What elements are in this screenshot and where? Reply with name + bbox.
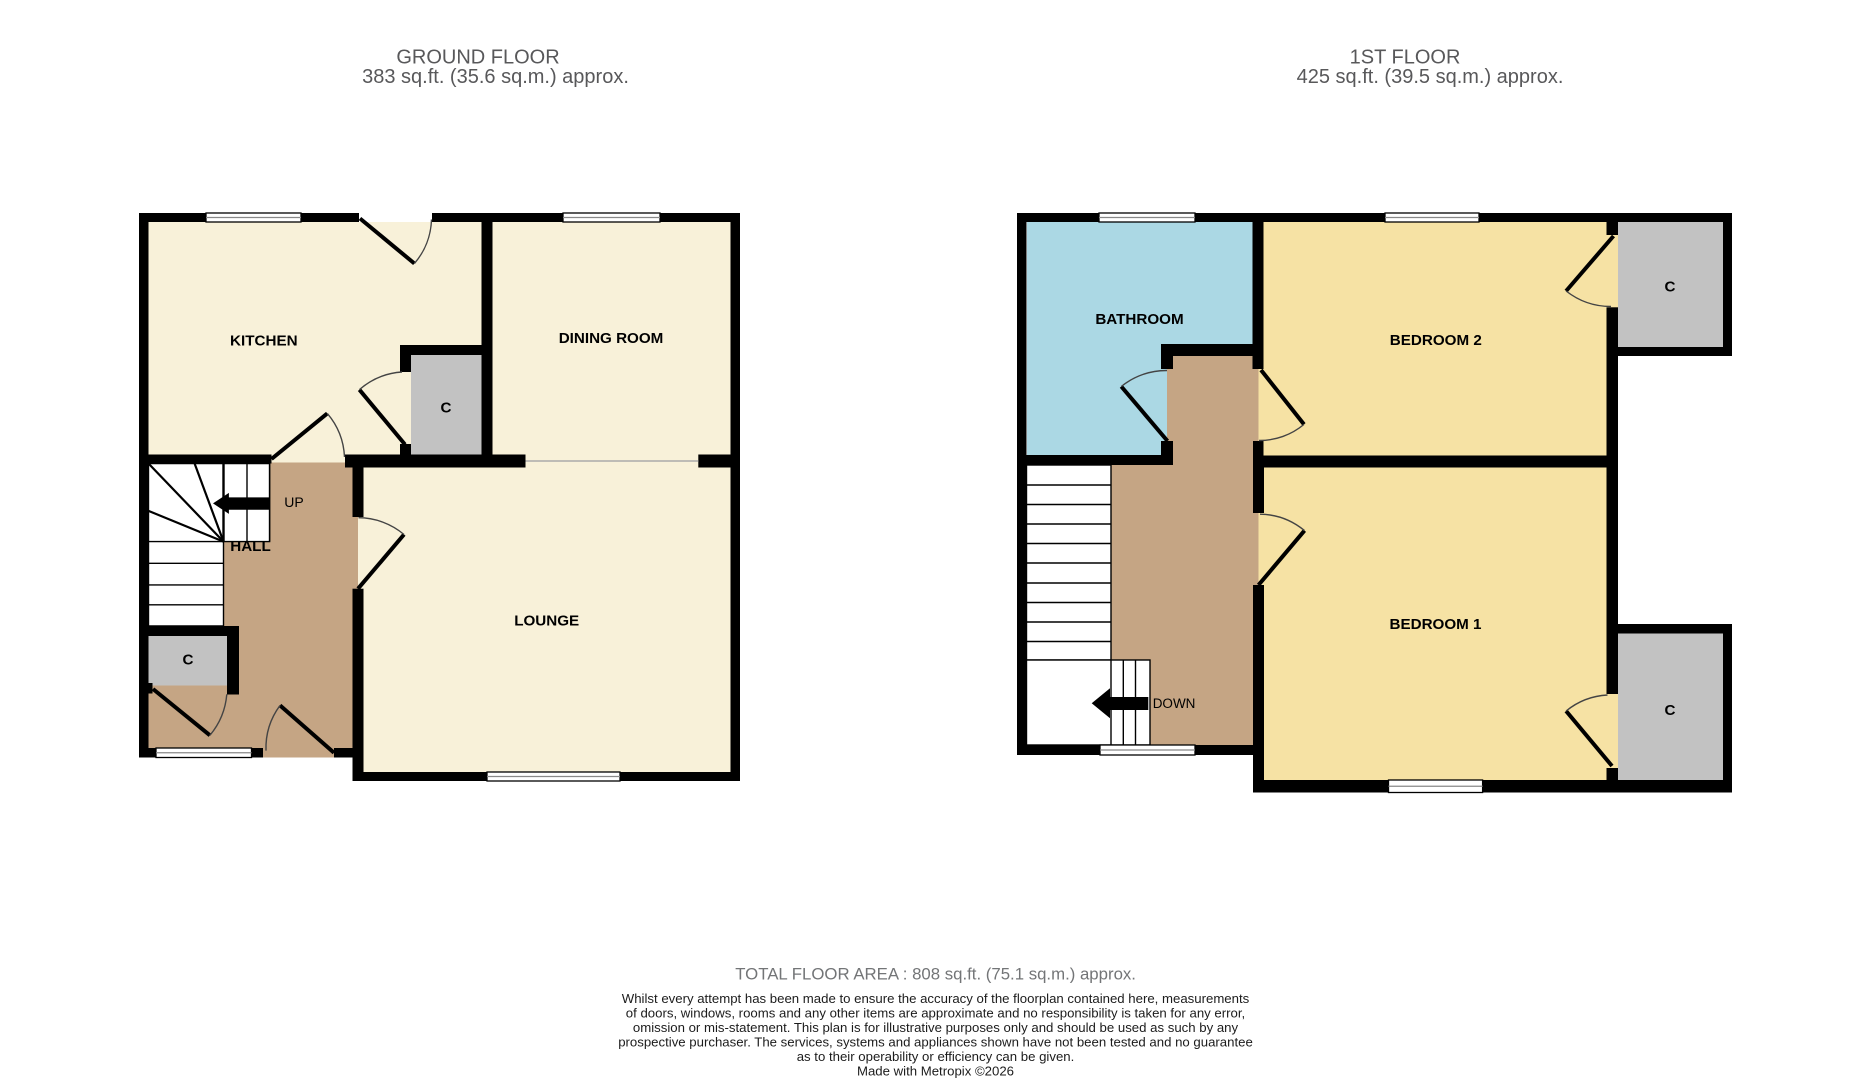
svg-text:BEDROOM 1: BEDROOM 1: [1390, 616, 1483, 633]
svg-text:DOWN: DOWN: [1153, 696, 1196, 711]
svg-text:DINING ROOM: DINING ROOM: [559, 330, 664, 347]
svg-text:C: C: [1665, 702, 1676, 719]
svg-text:LOUNGE: LOUNGE: [514, 613, 579, 630]
svg-text:C: C: [441, 400, 452, 417]
svg-text:omission or mis-statement. Thi: omission or mis-statement. This plan is …: [633, 1020, 1239, 1035]
svg-text:C: C: [183, 652, 194, 669]
svg-text:UP: UP: [284, 494, 303, 510]
svg-text:TOTAL FLOOR AREA : 808 sq.ft.: TOTAL FLOOR AREA : 808 sq.ft. (75.1 sq.m…: [735, 965, 1136, 984]
svg-text:of doors, windows, rooms and a: of doors, windows, rooms and any other i…: [626, 1006, 1245, 1021]
svg-text:prospective purchaser. The ser: prospective purchaser. The services, sys…: [618, 1035, 1253, 1050]
svg-text:383 sq.ft. (35.6 sq.m.) approx: 383 sq.ft. (35.6 sq.m.) approx.: [362, 66, 629, 88]
svg-text:KITCHEN: KITCHEN: [230, 333, 298, 350]
svg-text:Whilst every attempt has been: Whilst every attempt has been made to en…: [622, 991, 1250, 1006]
svg-text:HALL: HALL: [230, 538, 271, 555]
svg-text:as to their operability or eff: as to their operability or efficiency ca…: [797, 1049, 1075, 1064]
svg-text:GROUND FLOOR: GROUND FLOOR: [396, 47, 559, 69]
svg-text:1ST FLOOR: 1ST FLOOR: [1350, 47, 1461, 69]
svg-text:C: C: [1665, 279, 1676, 296]
svg-text:BATHROOM: BATHROOM: [1095, 311, 1183, 328]
svg-text:BEDROOM 2: BEDROOM 2: [1390, 332, 1482, 349]
svg-text:425 sq.ft. (39.5 sq.m.) approx: 425 sq.ft. (39.5 sq.m.) approx.: [1297, 66, 1564, 88]
svg-text:Made with Metropix ©2026: Made with Metropix ©2026: [857, 1063, 1014, 1078]
